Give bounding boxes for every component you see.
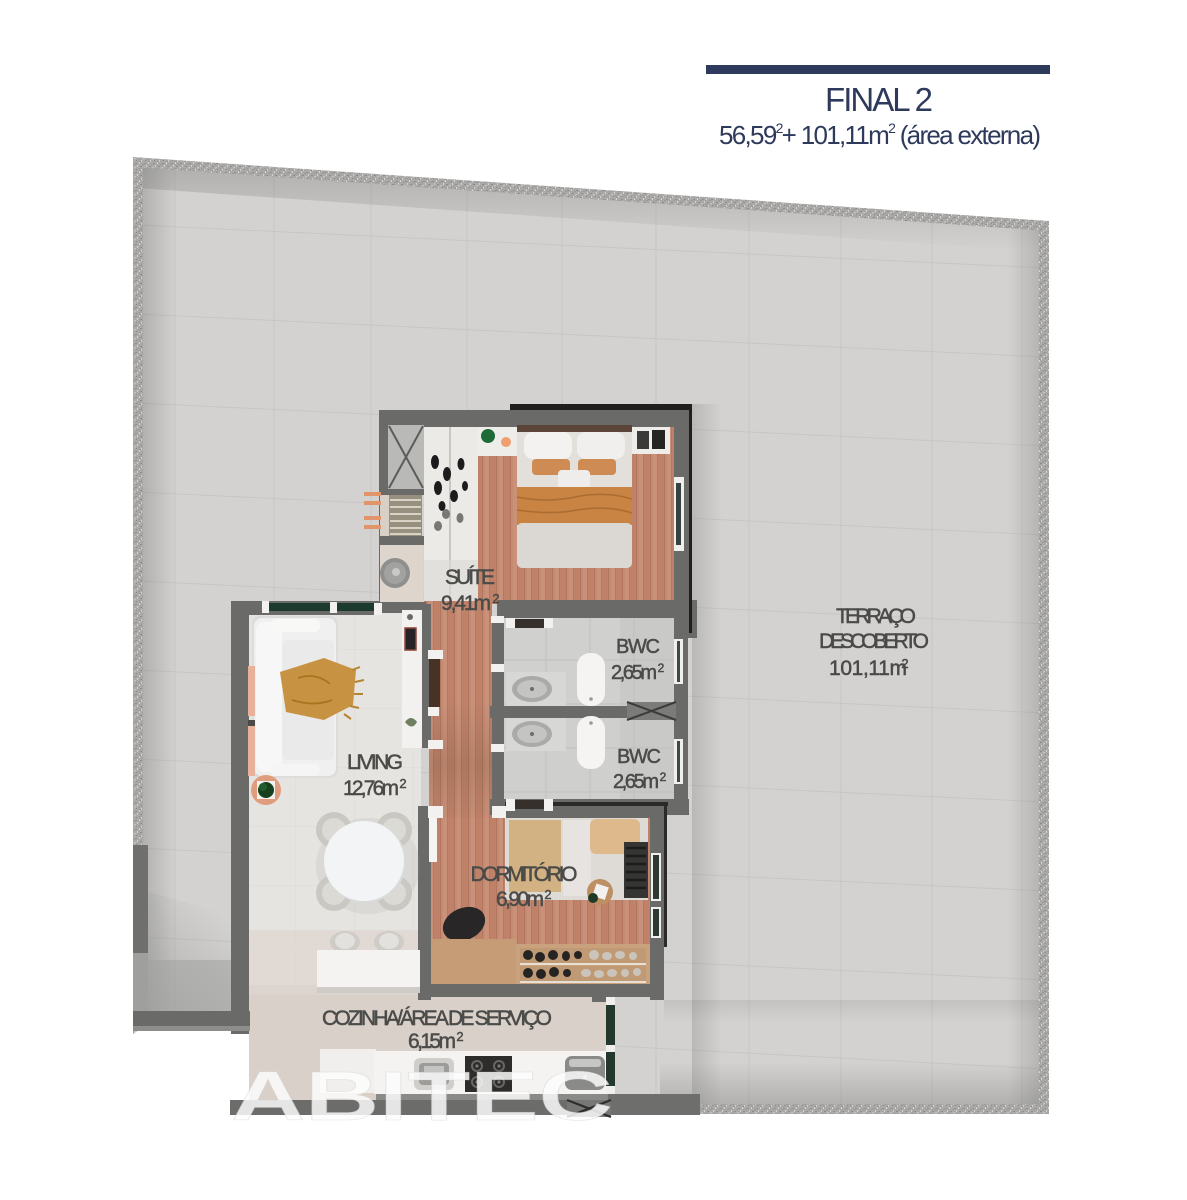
svg-text:2,65m: 2,65m xyxy=(613,771,659,793)
svg-text:DORMITÓRIO: DORMITÓRIO xyxy=(471,863,578,886)
svg-text:2: 2 xyxy=(660,770,667,784)
svg-text:2: 2 xyxy=(456,1029,463,1044)
svg-text:DESCOBERTO: DESCOBERTO xyxy=(819,630,929,653)
svg-text:LIVING: LIVING xyxy=(347,751,403,774)
svg-text:2,65m: 2,65m xyxy=(611,662,657,684)
svg-text:6,15m: 6,15m xyxy=(408,1030,456,1053)
svg-text:56,592+ 101,11m2 (área externa: 56,592+ 101,11m2 (área externa) xyxy=(719,120,1041,150)
svg-text:BWC: BWC xyxy=(617,746,661,768)
svg-text:101,11m: 101,11m xyxy=(829,657,907,680)
svg-text:12,76m: 12,76m xyxy=(343,777,399,800)
svg-text:FINAL 2: FINAL 2 xyxy=(825,81,933,118)
svg-text:2: 2 xyxy=(658,661,665,675)
svg-text:2: 2 xyxy=(492,591,499,606)
svg-text:ABITEC: ABITEC xyxy=(231,1057,613,1135)
svg-text:COZINHA/ÁREA DE SERVIÇO: COZINHA/ÁREA DE SERVIÇO xyxy=(322,1007,552,1030)
svg-text:9,41m: 9,41m xyxy=(441,592,491,615)
svg-text:BWC: BWC xyxy=(616,636,660,658)
svg-text:2: 2 xyxy=(544,887,551,902)
svg-text:2: 2 xyxy=(901,656,908,671)
svg-text:SUÍTE: SUÍTE xyxy=(445,566,495,589)
svg-text:2: 2 xyxy=(399,776,406,791)
svg-text:TERRAÇO: TERRAÇO xyxy=(836,605,916,628)
svg-text:6,90m: 6,90m xyxy=(496,888,544,911)
